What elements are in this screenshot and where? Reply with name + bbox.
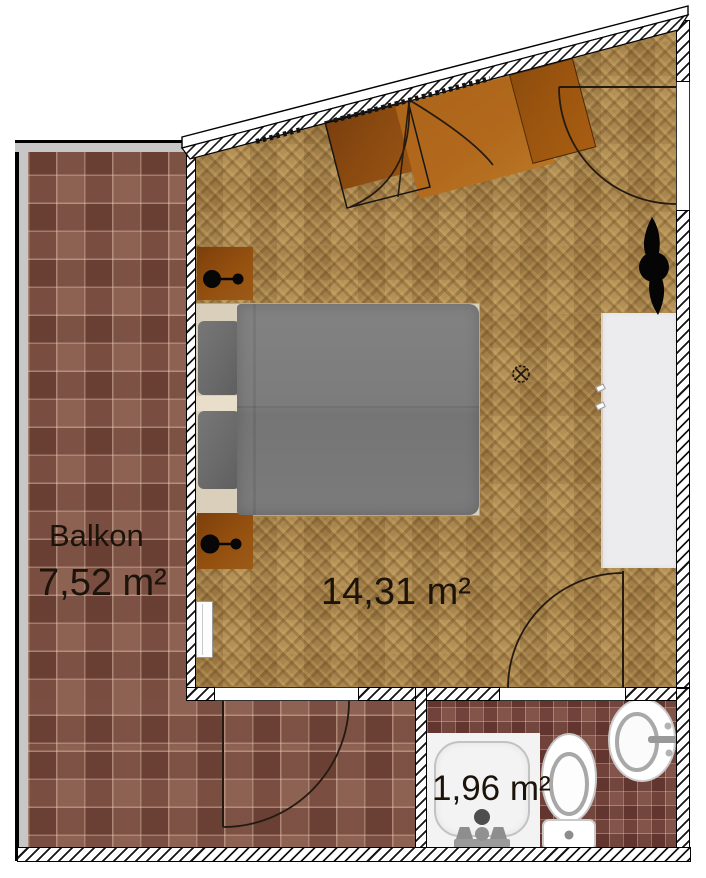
wall-right-mid xyxy=(676,210,690,688)
radiator xyxy=(196,601,213,658)
door-opening-entry xyxy=(676,82,690,210)
sink-faucet xyxy=(648,736,678,743)
balcony-railing-left xyxy=(15,140,28,861)
wall-bottom-seg-2 xyxy=(358,687,500,701)
pillow-bottom xyxy=(198,411,240,489)
radiator-fin-line xyxy=(202,604,203,655)
wall-bathroom-left xyxy=(415,687,427,848)
bedroom-area-label: 14,31 m² xyxy=(321,572,471,613)
wall-right-bath xyxy=(676,688,690,848)
bed-frame-divider xyxy=(195,396,239,411)
duvet-fold xyxy=(253,304,256,515)
wall-bottom-seg-1 xyxy=(186,687,215,701)
wall-bedroom-left xyxy=(186,145,196,688)
toilet-flush-button xyxy=(565,831,574,840)
balcony-railing-top xyxy=(15,140,186,152)
toilet-bowl-inner xyxy=(551,754,587,814)
duvet-crease xyxy=(237,406,479,408)
floor-plan: Balkon 7,52 m² 14,31 m² 1,96 m² xyxy=(0,0,706,878)
nightstand-top xyxy=(197,247,253,300)
door-opening-bathroom xyxy=(500,687,625,701)
balcony-name-label: Balkon xyxy=(49,519,144,552)
bathroom-area-label: 1,96 m² xyxy=(432,770,551,808)
balcony-area-label: 7,52 m² xyxy=(38,563,167,604)
sink-hole-2 xyxy=(666,750,673,757)
shower-drain xyxy=(474,809,490,825)
nightstand-bottom xyxy=(197,513,253,569)
sink xyxy=(606,698,680,784)
bed-duvet xyxy=(237,304,479,515)
door-opening-hallway xyxy=(215,687,358,701)
shower-faucet-knob xyxy=(475,827,489,841)
wardrobe xyxy=(601,313,676,568)
wall-right-top xyxy=(676,20,690,82)
hallway-floor xyxy=(28,700,417,848)
sink-hole-1 xyxy=(665,723,672,730)
wall-outer-bottom xyxy=(17,847,691,862)
pillow-top xyxy=(198,321,240,395)
